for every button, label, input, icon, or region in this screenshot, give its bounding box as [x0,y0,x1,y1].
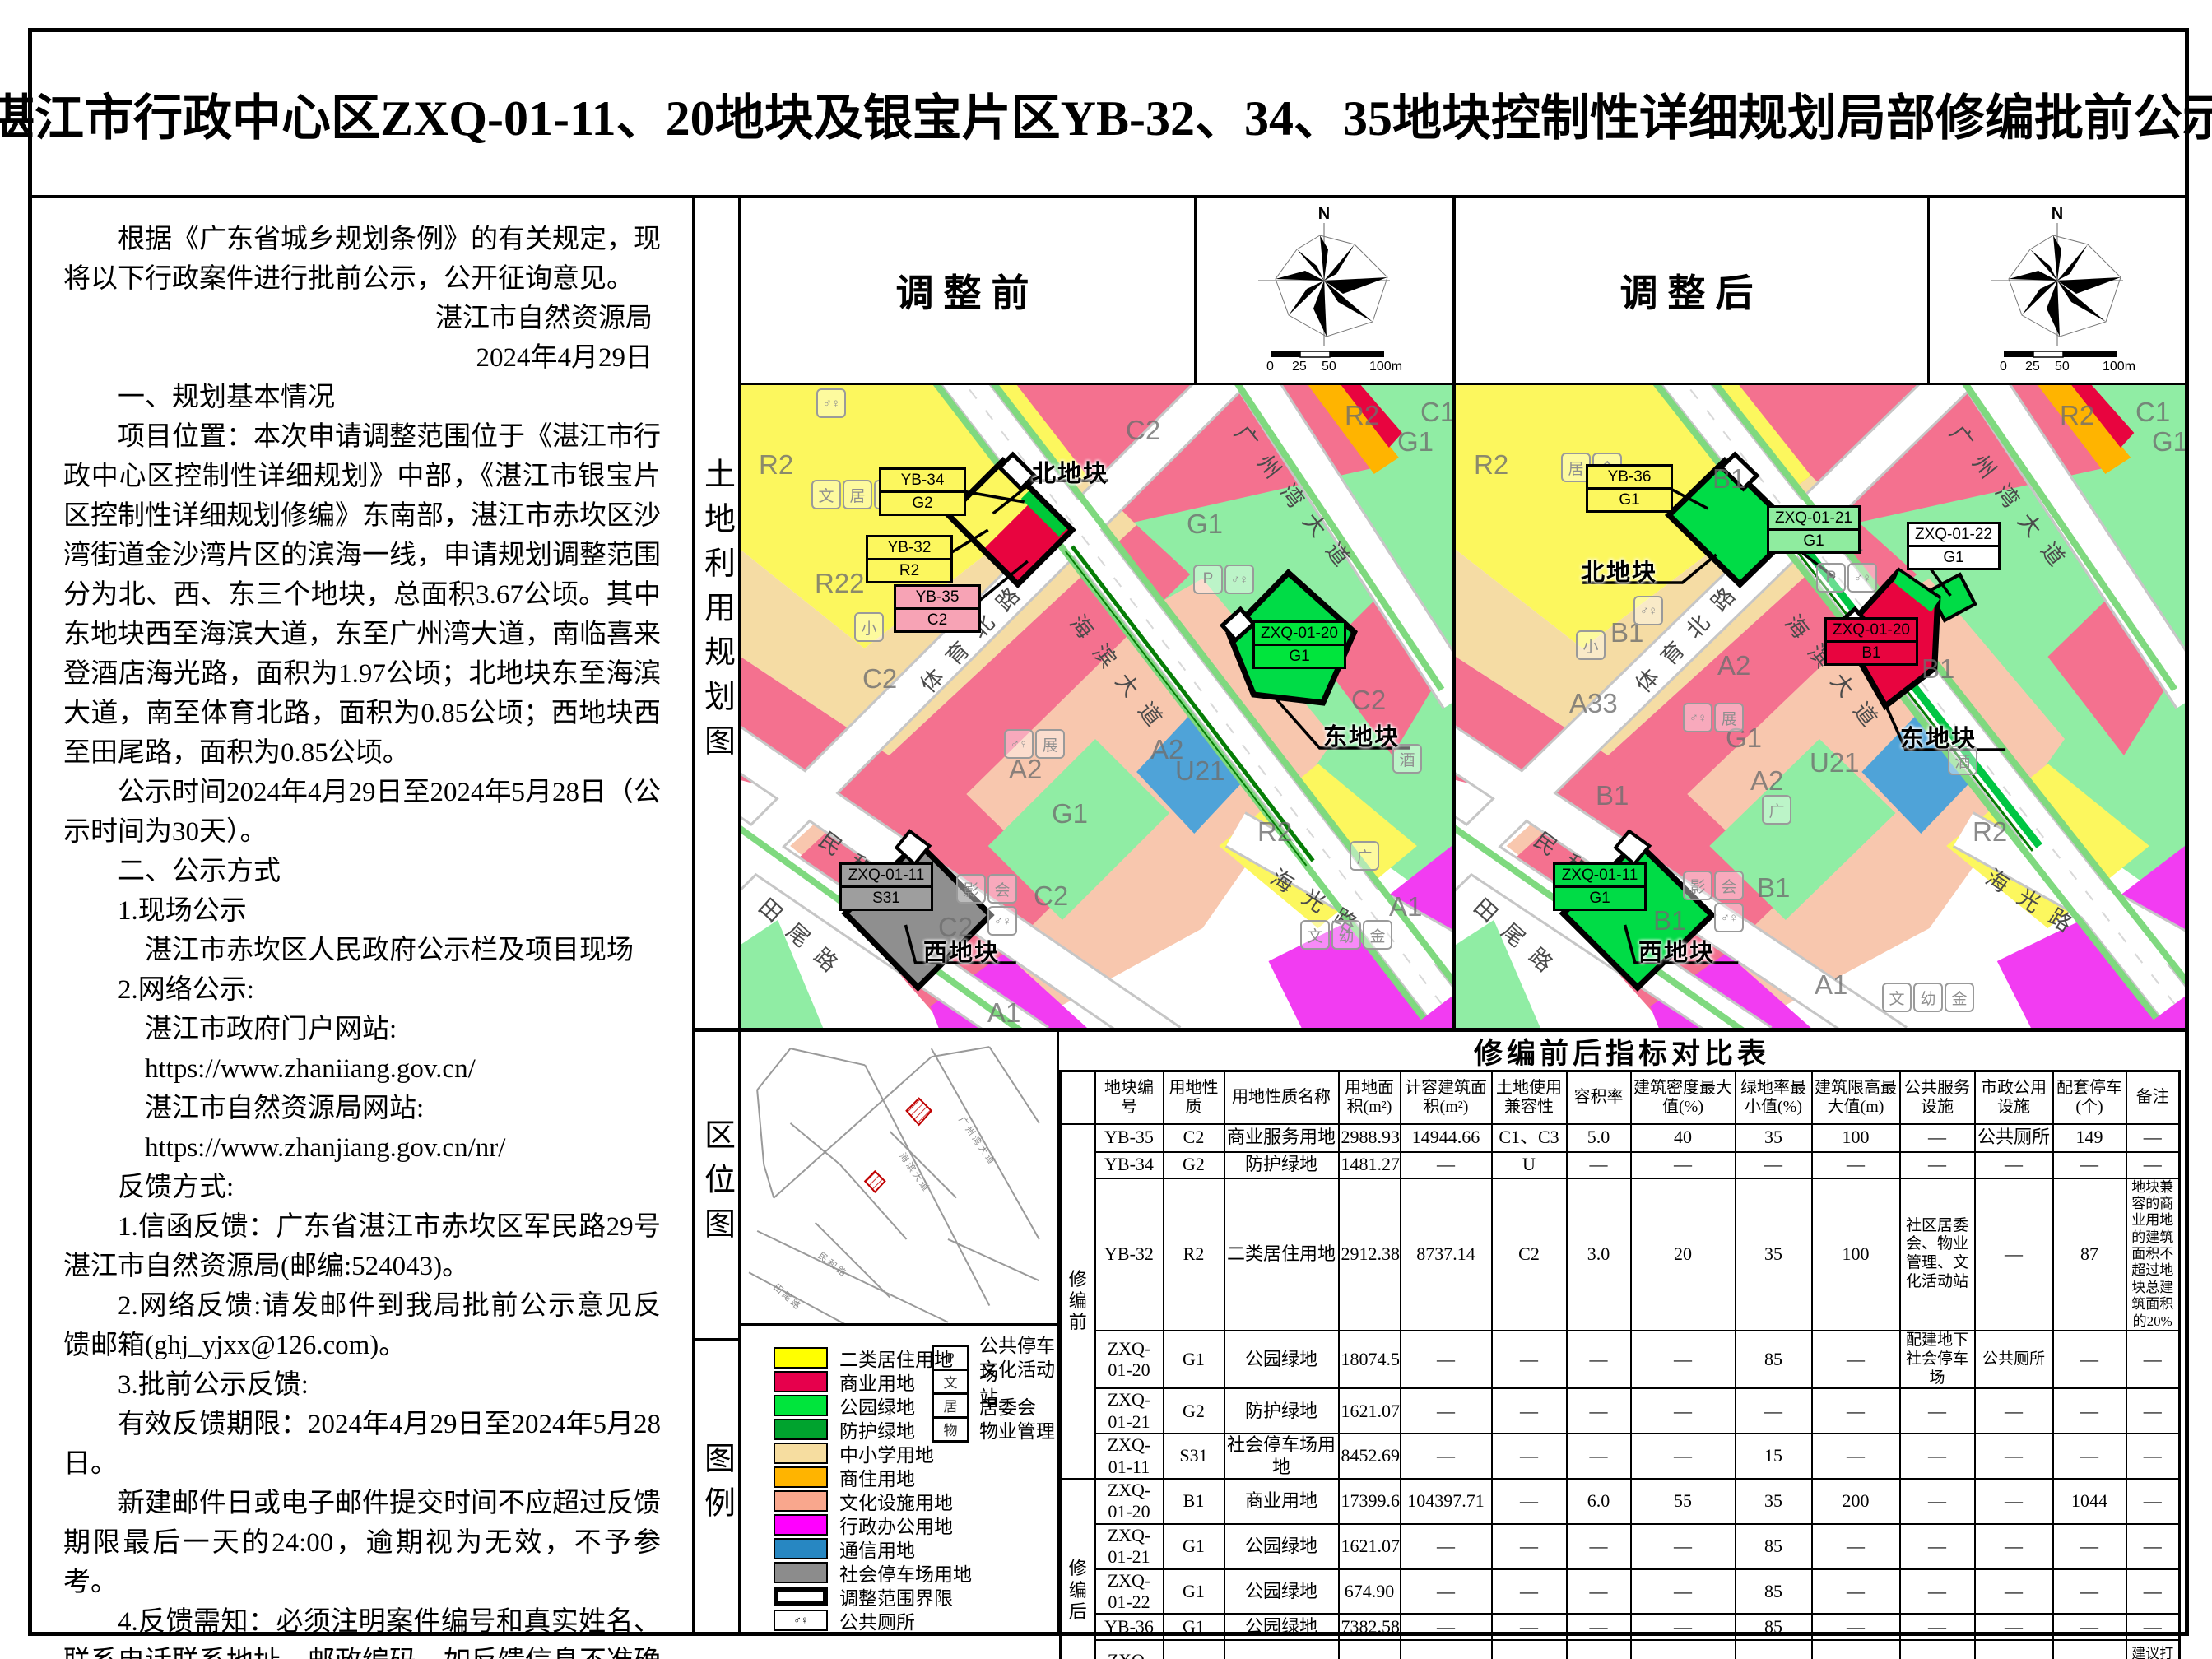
cell: 8452.69 [1339,1640,1401,1659]
zone-label: A1 [1389,891,1422,922]
cell: 17399.62 [1339,1479,1401,1524]
zone-label: C2 [1126,415,1160,446]
table-row: ZXQ-01-21G2防护绿地1621.07—————————— [1061,1388,2180,1434]
notice-heading-2: 二、公示方式 [63,852,661,891]
zone-label: C1 [1420,397,1452,428]
zone-label: B1 [1922,653,1954,685]
cell: ZXQ-01-22 [1095,1569,1164,1615]
cell: G1 [1164,1569,1224,1615]
table-row: YB-32R2二类居住用地2912.388737.14C23.02035100社… [1061,1178,2180,1331]
north-block-label: 北地块 [1032,454,1108,489]
zone-label: R2 [1345,400,1379,431]
committee-icon: 居 [843,480,872,509]
cell: 3.0 [1567,1178,1631,1331]
cell: 商业用地 [1224,1479,1339,1524]
toilet-icon: ♂♀ [1683,703,1712,732]
block-code: ZXQ-01-21 [1769,508,1858,531]
map-after-section: 调整后 N [1456,198,2185,1028]
cell: B1 [1164,1479,1224,1524]
cell: — [1900,1640,1975,1659]
land-use-strip: 土地利用规划图 [695,198,741,1028]
cell: 6.0 [1567,1479,1631,1524]
cell: — [1567,1434,1631,1479]
cell: 社会停车场用地 [1224,1434,1339,1479]
block-box-yb32: YB-32 R2 [866,535,953,583]
legend-right-column: P公共停车场 文文化活动站 居居委会 物物业管理 [932,1345,1057,1441]
table-row: 修编前 YB-35C2商业服务用地2988.9314944.66C1、C35.0… [1061,1124,2180,1152]
cell: 35 [1736,1479,1812,1524]
right-content: 土地利用规划图 调整前 N [695,198,2185,1632]
cell: — [1812,1569,1900,1615]
col-header: 容积率 [1567,1071,1631,1124]
zone-label: R2 [759,449,793,481]
cell: — [1631,1614,1736,1640]
cell: — [1631,1434,1736,1479]
block-use: G1 [1769,531,1858,551]
cell: — [1401,1569,1492,1615]
culture-icon: 文 [811,480,841,509]
comparison-table-title: 修编前后指标对比表 [1059,1032,2185,1070]
block-box-zxq0121: ZXQ-01-21 G1 [1767,505,1861,554]
cinema-icon: 影 [956,874,986,904]
school-icon: 小 [854,612,884,642]
cell: — [1492,1569,1567,1615]
cell: 20 [1631,1178,1736,1331]
notice-item: 湛江市自然资源局网站: [63,1089,661,1128]
legend-item: 调整范围界限 [774,1584,1057,1608]
cell: ZXQ-01-21 [1095,1524,1164,1569]
cell: — [1631,1152,1736,1178]
cell: ZXQ-01-11 [1095,1434,1164,1479]
toilet-icon: ♂♀ [987,906,1017,936]
legend-swatch-social-parking [774,1562,828,1583]
west-block-label: 西地块 [923,933,1000,968]
comparison-table-section: 修编前后指标对比表 地块编号 用地性质 [1059,1032,2185,1632]
notice-date: 2024年4月29日 [63,338,661,378]
legend-swatch-telecom [774,1538,828,1559]
location-map: 海滨大道 广州湾大道 民和路 田尾路 [741,1032,1057,1326]
block-box-zxq0120: ZXQ-01-20 G1 [1252,620,1346,669]
zone-label: B1 [1712,463,1745,495]
exhibition-icon: 展 [1035,729,1065,759]
land-use-strip-label: 土地利用规划图 [695,458,740,769]
compass-rose-icon [1930,198,2185,383]
document-body: 根据《广东省城乡规划条例》的有关规定，现将以下行政案件进行批前公示，公开征询意见… [32,198,2185,1632]
scale-0: 0 [1266,360,1274,374]
block-use: R2 [868,560,950,581]
map-before-header: 调整前 N [741,198,1452,385]
cell: — [1492,1524,1567,1569]
cell: — [1401,1524,1492,1569]
table-header-row: 地块编号 用地性质 用地性质名称 用地面积(m²) 计容建筑面积(m²) 土地使… [1061,1071,2180,1124]
notice-item: 2.网络公示: [63,970,661,1010]
notice-item: 1.现场公示 [63,891,661,931]
cell: 674.90 [1339,1569,1401,1615]
legend-item: 社会停车场用地 [774,1560,1057,1584]
cell: — [1975,1479,2053,1524]
cell: 2988.93 [1339,1124,1401,1152]
cell: 商业服务用地 [1224,1124,1339,1152]
map-after-title: 调整后 [1456,198,1930,383]
legend-swatch-toilet: ♂♀ [774,1610,828,1631]
scale-bar-labels: 0 25 50 100m [1930,360,2185,376]
block-use: G1 [1555,888,1644,908]
scale-0: 0 [2000,360,2007,374]
cell: — [1492,1388,1567,1434]
scale-100: 100m [2103,360,2135,374]
zone-label: C1 [2135,397,2170,428]
cell: 35 [1736,1178,1812,1331]
legend-swatch-park-green [774,1395,828,1416]
notice-item: 有效反馈期限：2024年4月29日至2024年5月28日。 [63,1405,661,1484]
finance-icon: 金 [1945,983,1974,1012]
cell: — [1567,1524,1631,1569]
notice-paragraph: 公示时间2024年4月29日至2024年5月28日（公示时间为30天）。 [63,773,661,852]
cell: 防护绿地 [1224,1388,1339,1434]
col-header: 备注 [2126,1071,2180,1124]
zone-label: R2 [1257,816,1292,848]
cell: — [2126,1569,2180,1615]
block-use: G1 [1588,490,1671,510]
cell: — [1900,1152,1975,1178]
cell: S31 [1164,1434,1224,1479]
cell: — [1492,1479,1567,1524]
block-use: G1 [1909,547,1998,568]
cell: — [1401,1388,1492,1434]
cell: 18074.52 [1339,1331,1401,1388]
block-code: YB-32 [868,537,950,560]
block-use: G2 [881,493,964,513]
cell: — [1401,1614,1492,1640]
block-box-zxq0122: ZXQ-01-22 G1 [1907,522,2001,570]
toilet-icon: ♂♀ [1224,565,1254,594]
cell: — [1736,1152,1812,1178]
scale-100: 100m [1369,360,1402,374]
block-use: C2 [896,610,978,630]
cell: 8452.69 [1339,1434,1401,1479]
zone-label: R2 [2060,400,2094,431]
col-header: 用地性质 [1164,1071,1224,1124]
legend-swatch-cultural [774,1490,828,1512]
cell: — [1401,1640,1492,1659]
cell: — [1631,1331,1736,1388]
cell: G2 [1164,1388,1224,1434]
cell: R2 [1164,1178,1224,1331]
cell: — [1975,1388,2053,1434]
cell: 100 [1812,1178,1900,1331]
col-header: 绿地率最小值(%) [1736,1071,1812,1124]
block-use: B1 [1827,643,1916,663]
cell: YB-36 [1095,1614,1164,1640]
zone-label: G1 [2152,426,2185,458]
cell: 公园绿地 [1224,1614,1339,1640]
notice-paragraph: 项目位置：本次申请调整范围位于《湛江市行政中心区控制性详细规划》中部，《湛江市银… [63,417,661,773]
cell: YB-32 [1095,1178,1164,1331]
cell: — [1812,1388,1900,1434]
notice-paragraph: 根据《广东省城乡规划条例》的有关规定，现将以下行政案件进行批前公示，公开征询意见… [63,220,661,299]
map-after-canvas: R2 A33 B1 B1 A2 A2 G1 G1 G1 U21 R2 B1 [1456,385,2185,1028]
cell: — [2053,1569,2126,1615]
cell: ZXQ-01-20 [1095,1331,1164,1388]
zone-label: A33 [1569,688,1618,719]
toilet-icon: ♂♀ [1004,729,1034,759]
comparison-table: 地块编号 用地性质 用地性质名称 用地面积(m²) 计容建筑面积(m²) 土地使… [1059,1070,2181,1659]
cell: 85 [1736,1524,1812,1569]
legend-strip-label: 图例 [695,1442,740,1531]
map-before-title: 调整前 [741,198,1197,383]
block-code: ZXQ-01-11 [1555,865,1644,888]
committee-icon: 居 [932,1392,969,1419]
cell: — [1975,1524,2053,1569]
col-header: 地块编号 [1095,1071,1164,1124]
cell: 配建地下社会停车场 [1900,1331,1975,1388]
cell: — [1900,1569,1975,1615]
cell: 15 [1736,1434,1812,1479]
cell: — [2126,1524,2180,1569]
table-row: YB-34G2防护绿地1481.27—U———————— [1061,1152,2180,1178]
cell: — [1975,1178,2053,1331]
table-row: ZXQ-01-21G1公园绿地1621.07————85————— [1061,1524,2180,1569]
cell: — [1401,1152,1492,1178]
cell: — [1812,1152,1900,1178]
cell: — [2126,1434,2180,1479]
school-icon: 小 [1576,630,1606,660]
zone-label: C2 [1351,685,1386,716]
legend-panel: 二类居住用地 商业用地 公园绿地 防护绿地 中小学用地 商住用地 文化设施用地 … [741,1326,1057,1632]
block-code: ZXQ-01-20 [1255,623,1344,646]
cell: 35 [1736,1124,1812,1152]
block-code: YB-35 [896,587,978,610]
legend-item: 物物业管理 [932,1417,1057,1441]
col-header: 配套停车(个) [2053,1071,2126,1124]
block-box-zxq0111: ZXQ-01-11 G1 [1553,862,1647,911]
zone-label: B1 [1653,905,1686,936]
notice-issuer: 湛江市自然资源局 [63,299,661,338]
cell: — [2126,1124,2180,1152]
cell: 7382.58 [1339,1614,1401,1640]
cell: 公园绿地 [1224,1640,1339,1659]
zone-label: R2 [1474,449,1508,481]
cell: G1 [1164,1524,1224,1569]
notice-item: 4.反馈需知：必须注明案件编号和真实姓名、联系电话联系地址、邮政编码，如反馈信息… [63,1602,661,1659]
cell: — [2053,1524,2126,1569]
cell: — [1812,1524,1900,1569]
culture-icon: 文 [1882,983,1912,1012]
cell: 社区居委会、物业管理、文化活动站 [1900,1178,1975,1331]
cell: — [2126,1388,2180,1434]
notice-url-gov: https://www.zhaniiang.gov.cn/ [63,1049,661,1089]
cell: — [1900,1124,1975,1152]
cell: 公园绿地 [1224,1331,1339,1388]
col-header: 建筑限高最大值(m) [1812,1071,1900,1124]
legend-swatch-adjust-boundary [774,1587,828,1606]
culture-icon: 文 [1300,920,1330,950]
zone-label: R2 [1973,816,2007,848]
notice-item: 湛江市赤坎区人民政府公示栏及项目现场 [63,931,661,970]
cell: 2912.38 [1339,1178,1401,1331]
cell: 87 [2053,1178,2126,1331]
scale-bar-labels: 0 25 50 100m [1197,360,1452,376]
cell: G1 [1164,1640,1224,1659]
land-use-maps-band: 土地利用规划图 调整前 N [695,198,2185,1032]
map-before-north-box: N [1197,198,1452,383]
cell: 二类居住用地 [1224,1178,1339,1331]
cell: — [1812,1331,1900,1388]
notice-item: 反馈方式: [63,1168,661,1207]
map-before-section: 调整前 N [741,198,1456,1028]
notice-item: 新建邮件日或电子邮件提交时间不应超过反馈期限最后一天的24:00，逾期视为无效，… [63,1484,661,1602]
zone-label: C2 [862,663,897,695]
cell: 公共厕所 [1975,1331,2053,1388]
map-after-header: 调整后 N [1456,198,2185,385]
cell: — [1900,1524,1975,1569]
col-header: 建筑密度最大值(%) [1631,1071,1736,1124]
group-after: 修编后 [1061,1479,1095,1659]
cell: 防护绿地 [1224,1152,1339,1178]
block-box-yb34: YB-34 G2 [879,467,966,516]
cell: — [1900,1388,1975,1434]
legend-swatch-mixed-use [774,1466,828,1488]
cell: 公园绿地 [1224,1524,1339,1569]
cell: — [1900,1434,1975,1479]
notice-heading-1: 一、规划基本情况 [63,378,661,417]
legend-strip: 图例 [695,1341,738,1632]
cell: 公园绿地 [1224,1569,1339,1615]
zone-label: G1 [1397,426,1434,458]
cell: — [1401,1434,1492,1479]
zone-label: A2 [1717,650,1750,681]
cell: 85 [1736,1614,1812,1640]
cell: — [1631,1388,1736,1434]
map-before-canvas: R2 R22 C2 C2 A2 A2 G1 G1 G1 U21 R2 C2 [741,385,1452,1028]
table-row: ZXQ-01-11G1公园绿地8452.69————85————建议打造地下停车… [1061,1640,2180,1659]
location-strip-label: 区位图 [695,1118,740,1252]
notice-item: 2.网络反馈:请发邮件到我局批前公示意见反馈邮箱(ghj_yjxx@126.co… [63,1286,661,1365]
notice-item: 1.信函反馈：广东省湛江市赤坎区军民路29号湛江市自然资源局(邮编:524043… [63,1207,661,1286]
location-strip: 区位图 [695,1032,738,1341]
legend-swatch-admin-office [774,1514,828,1536]
zone-label: C2 [1034,881,1068,912]
block-use: G1 [1255,646,1344,667]
notice-item: 湛江市政府门户网站: [63,1010,661,1049]
col-header: 市政公用设施 [1975,1071,2053,1124]
cell: 1621.07 [1339,1388,1401,1434]
cell: — [1567,1614,1631,1640]
toilet-icon: ♂♀ [1633,596,1663,625]
cell: — [1975,1569,2053,1615]
col-header: 公共服务设施 [1900,1071,1975,1124]
cell: — [1900,1614,1975,1640]
block-code: YB-36 [1588,467,1671,490]
legend-swatch-school [774,1443,828,1464]
cell: C1、C3 [1492,1124,1567,1152]
page-title: 湛江市行政中心区ZXQ-01-11、20地块及银宝片区YB-32、34、35地块… [32,32,2185,198]
zone-label: U21 [1175,755,1225,787]
cell: — [1975,1614,2053,1640]
legend-swatch-protective-green [774,1419,828,1440]
legend-item: ♂♀公共厕所 [774,1608,1057,1632]
cell: — [2053,1614,2126,1640]
table-row: ZXQ-01-20G1公园绿地18074.52————85—配建地下社会停车场公… [1061,1331,2180,1388]
cell: — [1567,1569,1631,1615]
committee-icon: 会 [1714,871,1744,900]
culture-station-icon: 文 [932,1369,969,1395]
scale-25: 25 [1292,360,1307,374]
cell: 地块兼容的商业用地的建筑面积不超过地块总建筑面积的20% [2126,1178,2180,1331]
block-code: ZXQ-01-20 [1827,620,1916,643]
cell: — [2126,1479,2180,1524]
cell: 8737.14 [1401,1178,1492,1331]
cell: 55 [1631,1479,1736,1524]
cell: — [1736,1388,1812,1434]
cell: YB-34 [1095,1152,1164,1178]
parking-icon: P [1193,565,1223,594]
cell: — [1492,1614,1567,1640]
scale-25: 25 [2025,360,2040,374]
cell: — [1567,1388,1631,1434]
side-strip: 区位图 图例 [695,1032,741,1632]
legend-item: 文文化活动站 [932,1369,1057,1393]
cell: — [2053,1640,2126,1659]
toilet-icon: ♂♀ [816,388,846,418]
cell: — [1812,1614,1900,1640]
cell: ZXQ-01-20 [1095,1479,1164,1524]
property-mgmt-icon: 物 [932,1416,969,1443]
zone-label: B1 [1596,780,1629,811]
cell: 85 [1736,1331,1812,1388]
cell: — [2126,1152,2180,1178]
cell: G1 [1164,1614,1224,1640]
plaza-icon: 广 [1350,841,1379,871]
toilet-icon: ♂♀ [1714,903,1744,932]
document-frame: 湛江市行政中心区ZXQ-01-11、20地块及银宝片区YB-32、34、35地块… [28,28,2189,1636]
legend-item: 中小学用地 [774,1441,1057,1465]
cell: 104397.71 [1401,1479,1492,1524]
notice-url-nr: https://www.zhanjiang.gov.cn/nr/ [63,1128,661,1168]
cell: C2 [1164,1124,1224,1152]
block-code: ZXQ-01-11 [842,865,931,888]
exhibition-icon: 展 [1714,703,1744,732]
cell: — [2126,1614,2180,1640]
zone-label: R22 [815,568,865,599]
cell: — [1812,1640,1900,1659]
legend-item: 商住用地 [774,1465,1057,1489]
notice-text-panel: 根据《广东省城乡规划条例》的有关规定，现将以下行政案件进行批前公示，公开征询意见… [32,198,695,1632]
cell: — [1492,1331,1567,1388]
toilet-icon: ♂♀ [1847,563,1877,592]
block-box-yb36: YB-36 G1 [1586,464,1673,513]
table-row: ZXQ-01-22G1公园绿地674.90————85————— [1061,1569,2180,1615]
notice-item: 3.批前公示反馈: [63,1365,661,1405]
mid-column: 海滨大道 广州湾大道 民和路 田尾路 二类居住用地 商业用地 公园绿地 防护绿地… [741,1032,1059,1632]
cell: 100 [1812,1124,1900,1152]
map-after-north-box: N [1930,198,2185,383]
cell: 85 [1736,1640,1812,1659]
block-box-zxq0120: ZXQ-01-20 B1 [1824,617,1918,666]
legend-item: 通信用地 [774,1536,1057,1560]
cell: C2 [1492,1178,1567,1331]
block-code: ZXQ-01-22 [1909,524,1998,547]
public-parking-icon: P [932,1345,969,1371]
planning-notice-page: 湛江市行政中心区ZXQ-01-11、20地块及银宝片区YB-32、34、35地块… [0,0,2212,1659]
cinema-icon: 影 [1683,871,1712,900]
parking-icon: P [1816,563,1846,592]
zone-label: A1 [987,997,1020,1028]
col-header: 用地性质名称 [1224,1071,1339,1124]
plaza-icon: 广 [1762,795,1791,825]
east-block-label: 东地块 [1323,718,1400,752]
location-map-geometry [741,1032,1057,1326]
